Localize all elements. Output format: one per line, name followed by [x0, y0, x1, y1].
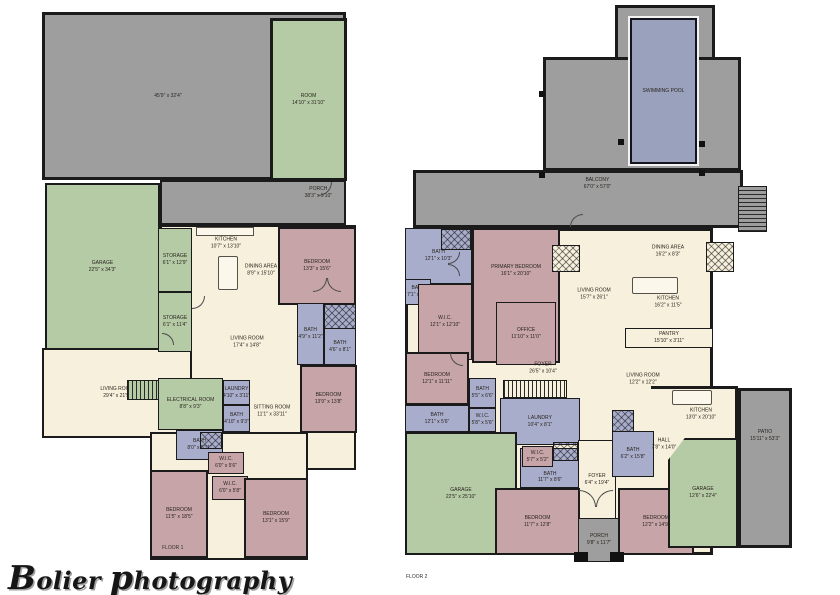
- f1-bath-3: BATH 4'10" x 9'3": [223, 405, 250, 432]
- room-name: BATH: [334, 340, 347, 347]
- room-dims: 4'10" x 3'11": [223, 393, 250, 400]
- room-name: KITCHEN: [690, 407, 712, 414]
- room-name: SITTING ROOM: [254, 404, 291, 411]
- room-name: ELECTRICAL ROOM: [167, 397, 215, 404]
- f2-closet-hatch: [441, 229, 471, 250]
- f2-shaft-hatch: [706, 242, 734, 272]
- room-dims: 6'1" x 12'9": [163, 260, 188, 267]
- room-dims: 16'2" x 8'3": [656, 251, 681, 258]
- f1-kitchen-island: [218, 256, 238, 290]
- f1-garage: GARAGE 22'5" x 34'3": [45, 183, 160, 351]
- f2-kitchen-label: KITCHEN 16'2" x 11'5": [654, 295, 681, 309]
- room-label: BEDROOM 13'3" x 15'6": [303, 259, 330, 273]
- room-name: BEDROOM: [316, 392, 342, 399]
- room-name: GARAGE: [450, 487, 471, 494]
- f2-living-room-small-label: LIVING ROOM 12'2" x 12'2": [626, 372, 659, 386]
- room-label: PANTRY 15'10" x 3'11": [654, 331, 684, 345]
- room-dims: 6'0" x 5'8": [219, 488, 241, 495]
- room-name: LAUNDRY: [528, 415, 552, 422]
- room-dims: 26'5" x 10'4": [529, 368, 556, 375]
- room-name: SWIMMING POOL: [643, 88, 685, 95]
- room-label: STORAGE 6'1" x 12'9": [163, 253, 188, 267]
- room-name: BALCONY: [585, 177, 609, 184]
- room-dims: 6'4" x 19'4": [585, 480, 610, 487]
- room-label: GARAGE 12'6" x 22'4": [689, 486, 716, 500]
- room-dims: 12'2" x 12'2": [629, 379, 656, 386]
- room-dims: 12'2" x 14'9": [642, 522, 669, 529]
- room-label: FOYER 6'4" x 19'4": [585, 473, 610, 487]
- room-name: FOYER: [534, 361, 551, 368]
- f2-office: OFFICE 11'10" x 11'0": [496, 302, 556, 365]
- room-label: BEDROOM 12'1" x 11'11": [422, 372, 451, 386]
- room-dims: 13'1" x 15'9": [262, 518, 289, 525]
- room-name: BEDROOM: [263, 511, 289, 518]
- f2-living-room-label: LIVING ROOM 15'7" x 26'1": [577, 287, 610, 301]
- room-dims: 67'0" x 57'0": [584, 184, 611, 191]
- room-label: PATIO 15'11" x 53'3": [750, 429, 780, 443]
- room-label: LAUNDRY 10'4" x 8'1": [528, 415, 553, 429]
- room-name: PANTRY: [659, 331, 679, 338]
- room-dims: 16'1" x 20'10": [501, 271, 531, 278]
- room-label: BATH 4'9" x 11'2": [298, 327, 322, 341]
- f1-bath-1: BATH 4'9" x 11'2": [297, 303, 324, 365]
- room-name: LIVING ROOM: [230, 335, 263, 342]
- f2-kitchen-island: [632, 277, 678, 294]
- f2-bedroom-low-left: BEDROOM 11'7" x 12'8": [495, 488, 580, 555]
- room-dims: 6'2" x 15'8": [621, 454, 646, 461]
- f1-storage-1: STORAGE 6'1" x 12'9": [158, 228, 192, 292]
- room-label: BATH 6'2" x 15'8": [621, 447, 646, 461]
- room-dims: 8'9" x 15'10": [247, 270, 274, 277]
- room-label: BATH 4'6" x 8'1": [329, 340, 351, 354]
- room-label: W.I.C. 6'0" x 5'6": [215, 456, 237, 470]
- f2-shaft-hatch: [552, 245, 580, 272]
- f1-bedroom-1: BEDROOM 13'3" x 15'6": [278, 227, 356, 305]
- room-dims: 4'6" x 8'1": [329, 347, 351, 354]
- room-name: W.I.C.: [223, 481, 237, 488]
- room-name: BATH: [431, 412, 444, 419]
- room-name: BATH: [627, 447, 640, 454]
- room-dims: 12'1" x 11'11": [422, 379, 451, 386]
- room-label: GARAGE 22'5" x 25'10": [446, 487, 476, 501]
- f1-sitting-room-label: SITTING ROOM 11'1" x 33'11": [254, 404, 291, 418]
- room-name: BATH: [304, 327, 317, 334]
- room-dims: 13'0" x 20'10": [686, 414, 716, 421]
- room-name: KITCHEN: [657, 295, 679, 302]
- f2-wic-low: W.I.C. 5'7" x 5'2": [522, 446, 553, 467]
- room-name: STORAGE: [163, 315, 187, 322]
- room-dims: 4'9" x 11'2": [298, 334, 322, 341]
- room-name: BEDROOM: [643, 515, 669, 522]
- f2-kitchen-small-island: [672, 390, 712, 405]
- room-name: LIVING ROOM: [577, 287, 610, 294]
- room-name: PATIO: [758, 429, 772, 436]
- room-label: BATH 11'7" x 8'6": [538, 471, 562, 485]
- f2-wic-mid: W.I.C. 5'8" x 5'6": [469, 408, 496, 432]
- f2-hall-label: HALL 7'8" x 14'0": [652, 437, 677, 451]
- room-label: LAUNDRY 4'10" x 3'11": [223, 386, 250, 400]
- room-dims: 5'5" x 6'6": [472, 393, 494, 400]
- room-name: BATH: [432, 249, 445, 256]
- room-label: BATH 12'1" x 5'6": [425, 412, 450, 426]
- room-dims: 13'9" x 13'8": [315, 399, 342, 406]
- floor-plan-canvas: 45'9" x 32'4" ROOM 14'10" x 31'10" PORCH…: [0, 0, 840, 595]
- room-dims: 12'1" x 5'6": [425, 419, 450, 426]
- room-name: OFFICE: [517, 327, 535, 334]
- floor1-caption: FLOOR 1: [162, 545, 183, 551]
- room-label: W.I.C. 5'8" x 5'6": [472, 413, 494, 427]
- room-name: BEDROOM: [525, 515, 551, 522]
- room-label: BATH 5'5" x 6'6": [472, 386, 494, 400]
- room-name: HALL: [658, 437, 671, 444]
- porch-pillar: [574, 552, 588, 562]
- room-dims: 9'8" x 11'7": [587, 540, 611, 547]
- room-label: STORAGE 6'1" x 11'4": [163, 315, 187, 329]
- f2-stairs: [503, 380, 567, 398]
- room-dims: 11'5" x 18'5": [165, 514, 192, 521]
- room-dims: 17'4" x 14'8": [233, 342, 260, 349]
- room-name: W.I.C.: [438, 315, 452, 322]
- f2-shower-hatch: [553, 442, 578, 461]
- room-dims: 8'8" x 9'3": [180, 404, 202, 411]
- f1-stairs: [127, 380, 160, 400]
- room-name: PRIMARY BEDROOM: [491, 264, 541, 271]
- f2-foyer-lower: FOYER 6'4" x 19'4": [578, 440, 616, 520]
- f2-wic-primary: W.I.C. 12'1" x 12'10": [418, 284, 472, 360]
- f2-bath-right: BATH 6'2" x 15'8": [612, 431, 654, 477]
- room-label: ELECTRICAL ROOM 8'8" x 9'3": [167, 397, 215, 411]
- room-label: BEDROOM 12'2" x 14'9": [642, 515, 669, 529]
- f1-kitchen-counter: [196, 227, 254, 236]
- watermark-word: Bolier: [8, 558, 101, 595]
- room-label: PRIMARY BEDROOM 16'1" x 20'10": [491, 264, 541, 278]
- f1-electrical-room: ELECTRICAL ROOM 8'8" x 9'3": [158, 378, 223, 430]
- f2-outdoor-stairs: [738, 186, 767, 232]
- room-name: GARAGE: [692, 486, 713, 493]
- room-dims: 45'9" x 32'4": [154, 93, 181, 100]
- balcony-pillar: [539, 91, 545, 97]
- room-dims: 5'8" x 5'6": [472, 420, 494, 427]
- f2-bath-mid: BATH 12'1" x 5'6": [405, 405, 469, 432]
- room-name: PORCH: [590, 533, 608, 540]
- room-name: DINING AREA: [652, 244, 684, 251]
- f2-shower-hatch: [612, 410, 634, 432]
- balcony-pillar: [539, 172, 545, 178]
- room-dims: 11'7" x 8'6": [538, 477, 562, 484]
- room-name: FOYER: [588, 473, 605, 480]
- room-dims: 15'7" x 26'1": [580, 294, 607, 301]
- room-dims: 11'1" x 33'11": [257, 411, 286, 418]
- room-label: GARAGE 22'5" x 34'3": [89, 260, 116, 274]
- room-dims: 12'6" x 22'4": [689, 493, 716, 500]
- room-label: W.I.C. 12'1" x 12'10": [430, 315, 460, 329]
- room-name: STORAGE: [163, 253, 187, 260]
- f1-kitchen-label: KITCHEN 10'7" x 13'10": [211, 236, 241, 250]
- f2-swimming-pool: SWIMMING POOL: [630, 18, 697, 164]
- room-label: BEDROOM 11'7" x 12'8": [524, 515, 551, 529]
- room-label: BATH 4'10" x 9'3": [224, 412, 249, 426]
- room-name: BATH: [544, 471, 557, 478]
- room-name: LAUNDRY: [225, 386, 249, 393]
- f1-living-room-label: LIVING ROOM 17'4" x 14'8": [230, 335, 263, 349]
- room-dims: 22'5" x 34'3": [89, 267, 116, 274]
- balcony-pillar: [699, 170, 705, 176]
- room-dims: 22'5" x 25'10": [446, 494, 476, 501]
- f1-wic-2: W.I.C. 6'0" x 5'8": [212, 476, 248, 500]
- photographer-watermark: Bolier photography: [8, 558, 292, 595]
- f2-dining-area-label: DINING AREA 16'2" x 8'3": [652, 244, 684, 258]
- room-name: LIVING ROOM: [626, 372, 659, 379]
- room-label: BEDROOM 13'9" x 13'8": [315, 392, 342, 406]
- room-dims: 13'3" x 15'6": [303, 266, 330, 273]
- room-dims: 11'7" x 12'8": [524, 522, 551, 529]
- room-dims: 6'1" x 11'4": [163, 322, 187, 329]
- f1-shower-hatch: [200, 432, 222, 449]
- f1-laundry: LAUNDRY 4'10" x 3'11": [223, 380, 250, 405]
- room-dims: 15'10" x 3'11": [654, 338, 684, 345]
- floor2-caption: FLOOR 2: [406, 574, 427, 580]
- room-dims: 16'2" x 11'5": [654, 302, 681, 309]
- room-dims: 5'7" x 5'2": [527, 457, 549, 464]
- f1-bedroom-4: BEDROOM 13'1" x 15'9": [244, 478, 308, 558]
- f2-bath-mid-small: BATH 5'5" x 6'6": [469, 378, 496, 408]
- room-label: BALCONY 67'0" x 57'0": [584, 177, 611, 191]
- balcony-pillar: [618, 139, 624, 145]
- room-name: KITCHEN: [215, 236, 237, 243]
- f1-wic-1: W.I.C. 6'0" x 5'6": [208, 452, 244, 474]
- watermark-word: photography: [110, 558, 292, 595]
- balcony-pillar: [699, 141, 705, 147]
- room-name: DINING AREA: [245, 263, 277, 270]
- room-label: 45'9" x 32'4": [154, 93, 181, 100]
- f2-patio: PATIO 15'11" x 53'3": [738, 388, 792, 548]
- room-name: ROOM: [301, 93, 317, 100]
- f1-closet-hatch: [324, 304, 356, 329]
- room-dims: 4'10" x 9'3": [224, 419, 249, 426]
- room-name: BEDROOM: [304, 259, 330, 266]
- room-name: W.I.C.: [531, 450, 545, 457]
- room-dims: 7'8" x 14'0": [652, 444, 677, 451]
- room-label: W.I.C. 5'7" x 5'2": [527, 450, 549, 464]
- room-label: PORCH 9'8" x 11'7": [587, 533, 611, 547]
- f1-bedroom-2: BEDROOM 13'9" x 13'8": [300, 365, 357, 433]
- room-dims: 10'7" x 13'10": [211, 243, 241, 250]
- room-name: BATH: [476, 386, 489, 393]
- room-dims: 15'11" x 53'3": [750, 436, 780, 443]
- room-dims: 12'1" x 12'10": [430, 322, 460, 329]
- room-dims: 11'10" x 11'0": [511, 334, 540, 341]
- room-name: W.I.C.: [476, 413, 490, 420]
- f2-pantry: PANTRY 15'10" x 3'11": [625, 328, 713, 348]
- room-label: W.I.C. 6'0" x 5'8": [219, 481, 241, 495]
- f2-garage-right: GARAGE 12'6" x 22'4": [668, 438, 738, 548]
- f1-dining-area-label: DINING AREA 8'9" x 15'10": [245, 263, 277, 277]
- f1-bath-2: BATH 4'6" x 8'1": [324, 328, 356, 365]
- room-name: GARAGE: [92, 260, 113, 267]
- f1-room: ROOM 14'10" x 31'10": [270, 18, 347, 181]
- room-label: SWIMMING POOL: [643, 88, 685, 95]
- room-label: BEDROOM 11'5" x 18'5": [165, 507, 192, 521]
- room-label: ROOM 14'10" x 31'10": [292, 93, 325, 107]
- room-dims: 14'10" x 31'10": [292, 100, 325, 107]
- porch-pillar: [610, 552, 624, 562]
- room-dims: 6'0" x 5'6": [215, 463, 237, 470]
- f2-foyer-upper-label: FOYER 26'5" x 10'4": [529, 361, 556, 375]
- f2-kitchen-small-label: KITCHEN 13'0" x 20'10": [686, 407, 716, 421]
- room-label: BEDROOM 13'1" x 15'9": [262, 511, 289, 525]
- room-name: BATH: [230, 412, 243, 419]
- room-name: BEDROOM: [166, 507, 192, 514]
- room-dims: 10'4" x 8'1": [528, 422, 553, 429]
- room-label: OFFICE 11'10" x 11'0": [511, 327, 540, 341]
- room-name: W.I.C.: [219, 456, 233, 463]
- room-name: BEDROOM: [424, 372, 450, 379]
